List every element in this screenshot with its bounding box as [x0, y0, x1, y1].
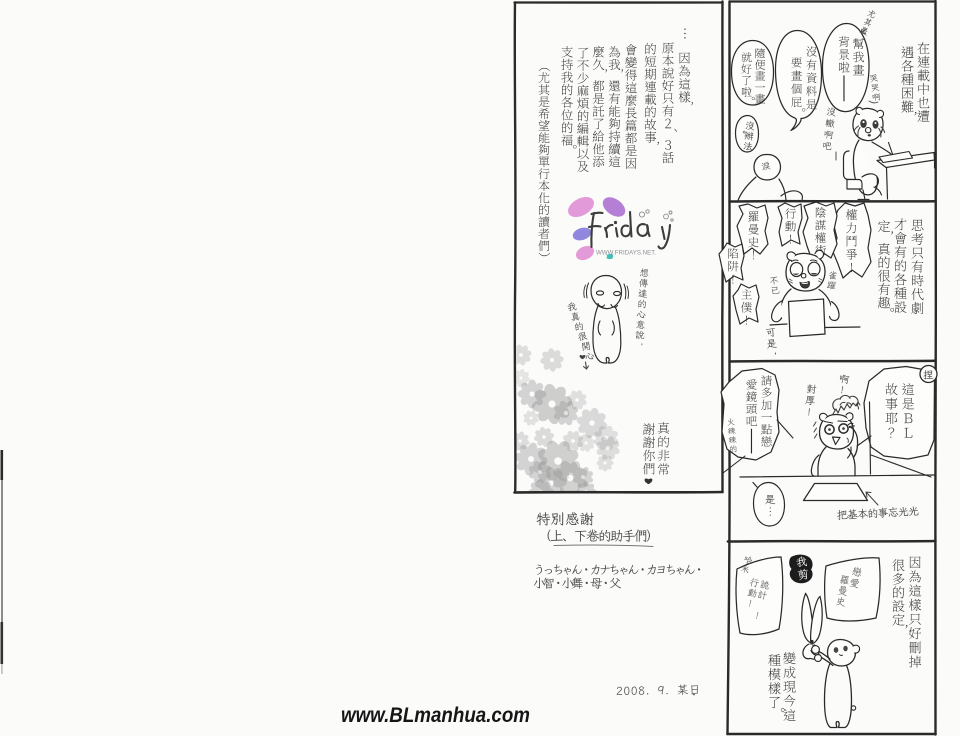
svg-text:www.BLmanhua.com: www.BLmanhua.com	[341, 704, 530, 727]
svg-text:WWW.FRIDAYS.NET.: WWW.FRIDAYS.NET.	[596, 250, 656, 257]
